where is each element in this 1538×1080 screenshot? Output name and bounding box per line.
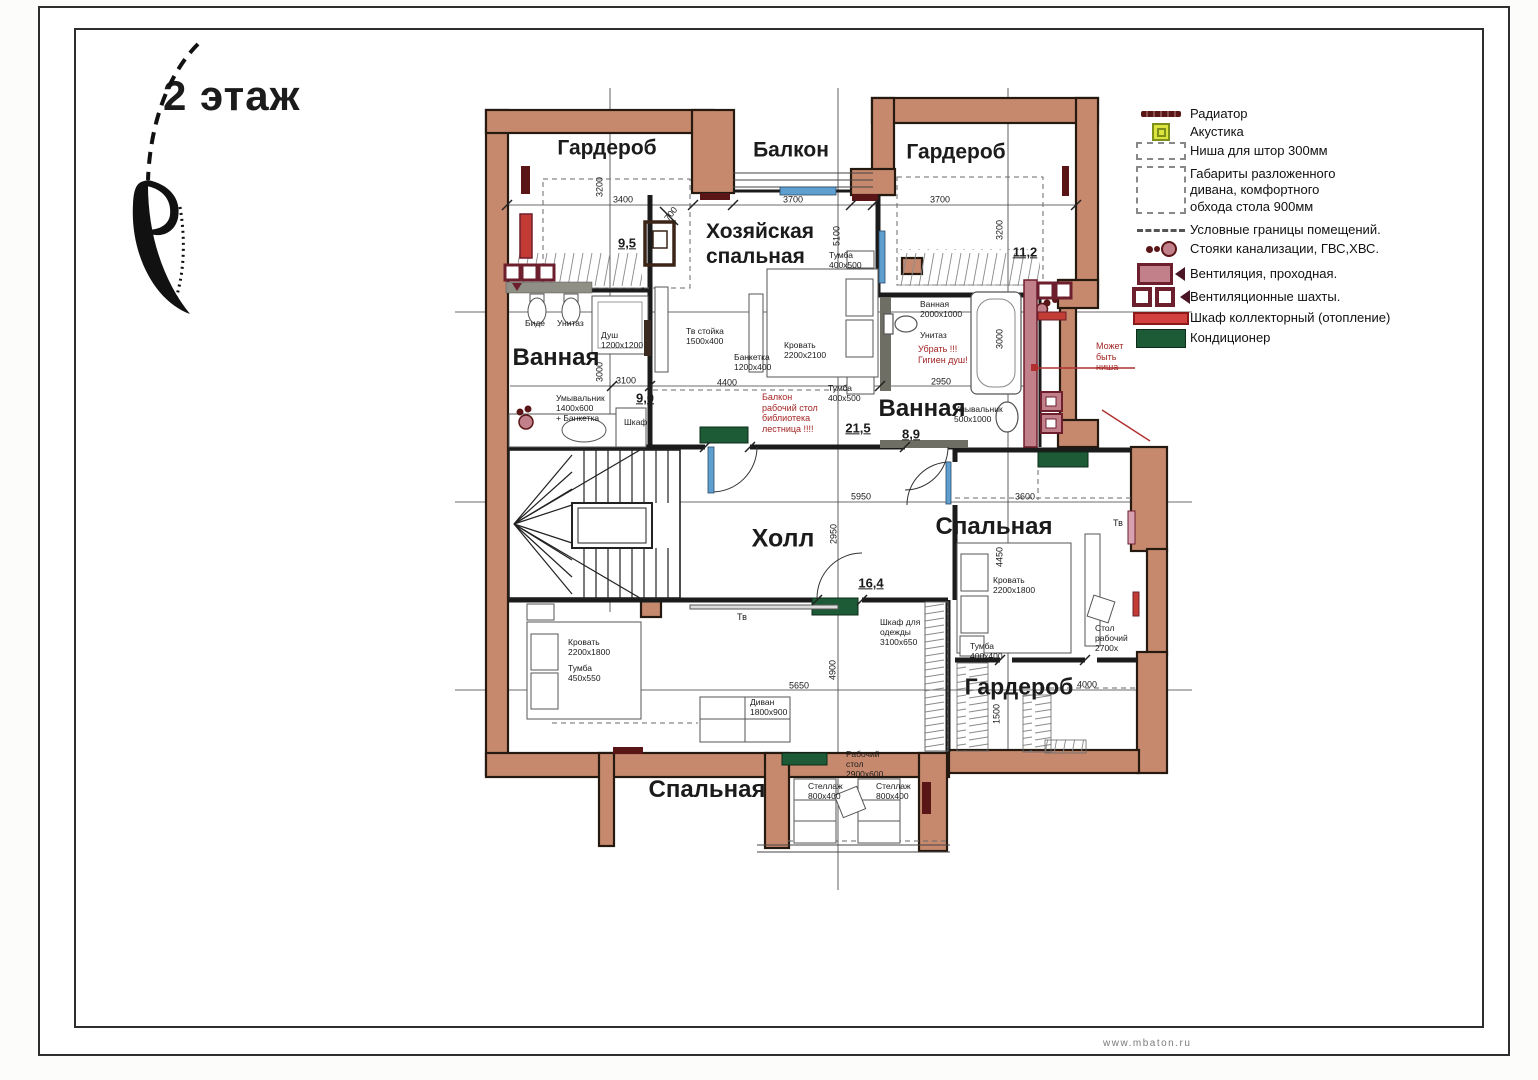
furniture-label: Унитаз [557,318,584,328]
dim: 2950 [931,377,951,388]
room-garderob-tr: Гардероб [906,141,1005,166]
furniture-label: Банкетка 1200х400 [734,352,771,372]
room-bedroom-right: Спальная [935,513,1052,541]
furniture-label: Шкаф [624,417,647,427]
dim: 4900 [828,660,839,680]
sofa-clearance-icon [1132,166,1190,214]
vent-shaft-icon [1132,287,1190,307]
dim: 2950 [829,524,840,544]
dim: 1500 [992,704,1003,724]
furniture-label: Умывальник 500х1000 [954,404,1003,424]
legend-item-vent-shaft: Вентиляционные шахты. [1132,287,1340,307]
room-bedroom-bottom: Спальная [648,776,765,804]
curtain-niche-icon [1132,142,1190,160]
room-master: Хозяйская спальная [706,220,814,270]
acoustics-icon [1132,123,1190,141]
vent-through-icon [1132,263,1190,285]
furniture-label: Шкаф для одежды 3100х650 [880,617,920,647]
legend-item-acoustics: Акустика [1132,123,1244,141]
room-bath-left: Ванная [512,344,599,372]
furniture-label: Диван 1800х900 [750,697,787,717]
legend-item-room-boundary: Условные границы помещений. [1132,222,1381,238]
dim: 5650 [789,681,809,692]
note-red: Может быть ниша [1096,341,1123,373]
area-value: 21,5 [845,420,870,435]
furniture-label: Тв стойка 1500х400 [686,326,724,346]
area-value: 9,0 [636,390,654,405]
furniture-label: Тв [737,612,747,623]
room-balkon: Балкон [753,139,829,164]
legend-item-vent-through: Вентиляция, проходная. [1132,263,1337,285]
area-value: 8,9 [902,426,920,441]
dim: 4000 [1077,680,1097,691]
dim: 5950 [851,492,871,503]
furniture-label: Тумба 400х400 [970,641,1003,661]
dim: 3100 [616,376,636,387]
dim: 3600 [1015,492,1035,503]
furniture-label: Кровать 2200х1800 [568,637,610,657]
furniture-label: Кровать 2200х1800 [993,575,1035,595]
risers-icon [1132,241,1190,257]
furniture-label: Стеллаж 800х400 [808,781,843,801]
legend-item-collector-cabinet: Шкаф коллекторный (отопление) [1132,310,1390,326]
furniture-label: Тумба 400х500 [828,383,861,403]
furniture-label: Биде [525,318,545,328]
room-boundary-icon [1132,229,1190,232]
room-garderob-tl: Гардероб [557,137,656,162]
dim: 3200 [595,177,606,197]
legend-item-risers: Стояки канализации, ГВС,ХВС. [1132,241,1379,257]
furniture-label: Стол рабочий 2700х [1095,623,1128,653]
furniture-label: Тумба 400х500 [829,250,862,270]
furniture-label: Кровать 2200х2100 [784,340,826,360]
furniture-label: Рабочий стол 2900х600 [846,749,883,779]
furniture-label: Унитаз [920,330,947,340]
legend-item-conditioner: Кондиционер [1132,329,1270,348]
conditioner-icon [1132,329,1190,348]
radiator-icon [1132,111,1190,117]
stairs [509,450,680,598]
legend-item-radiator: Радиатор [1132,106,1248,122]
legend-item-sofa-clearance: Габариты разложенного дивана, комфортног… [1132,166,1335,215]
dim: 3700 [930,195,950,206]
area-value: 11,2 [1013,244,1038,259]
room-garderob-br: Гардероб [965,673,1074,700]
furniture-label: Ванная 2000х1000 [920,299,962,319]
area-value: 16,4 [858,575,883,590]
room-bath-right: Ванная [878,395,965,423]
furniture-label: Тв [1113,518,1123,529]
dim: 3700 [783,195,803,206]
furniture-label: Тумба 450х550 [568,663,601,683]
area-value: 9,5 [618,235,636,250]
furniture-label: Умывальник 1400х600 + Банкетка [556,393,605,423]
dim: 3000 [595,362,606,382]
dim: 4400 [717,378,737,389]
watermark: www.mbaton.ru [1103,1038,1191,1049]
dim: 4450 [995,547,1006,567]
room-hall: Холл [752,524,815,554]
furniture-label: Душ 1200х1200 [601,330,643,350]
note-red: Убрать !!! Гигиен душ! [918,344,968,365]
dim: 3200 [995,220,1006,240]
dim: 5100 [832,226,843,246]
dim: 3400 [613,195,633,206]
legend-item-curtain-niche: Ниша для штор 300мм [1132,142,1328,160]
furniture-label: Стеллаж 800х400 [876,781,911,801]
note-red: Балкон рабочий стол библиотека лестница … [762,392,818,434]
dim: 3000 [995,329,1006,349]
collector-cabinet-icon [1132,312,1190,325]
